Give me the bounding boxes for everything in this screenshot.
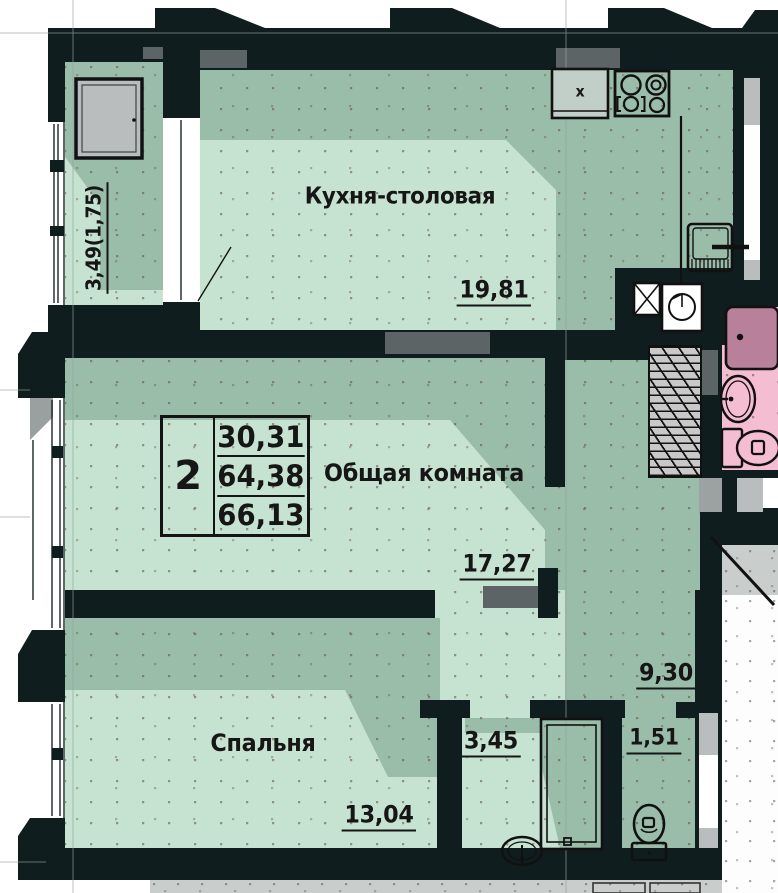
room-balcony — [60, 62, 163, 305]
lower-floor-outlines — [593, 883, 700, 893]
right-window — [699, 755, 718, 828]
balcony-door-glazing — [166, 118, 197, 240]
neighbor-door — [737, 478, 763, 512]
pilaster-1 — [155, 8, 265, 28]
kitchen-label: Кухня-столовая — [305, 186, 496, 209]
total-area: 66,13 — [218, 495, 305, 534]
lintel-entry — [702, 350, 718, 395]
apartment-area: 64,38 — [218, 455, 305, 494]
wall-bottom — [20, 848, 722, 880]
neighbor-toilet-icon — [722, 429, 778, 467]
balcony-area-label: 3,49(1,75) — [84, 182, 109, 294]
neighbor-door-2 — [763, 478, 778, 508]
wall-stub-hall — [538, 568, 558, 618]
pilaster-4 — [742, 10, 778, 28]
pier-2 — [18, 630, 65, 702]
wall-bedroom-bath — [437, 702, 462, 852]
wall-living-bedroom — [65, 590, 435, 618]
wall-entry-lower — [700, 512, 722, 595]
balcony-glazing — [48, 122, 65, 305]
pilaster-2 — [390, 8, 500, 28]
bedroom-label: Спальня — [210, 731, 315, 755]
wall-bath-wc — [603, 702, 622, 852]
lintel-kitchen-living — [385, 332, 490, 354]
wall-top — [163, 28, 778, 70]
living-area-label: 17,27 — [460, 552, 535, 581]
wall-wc-stub — [676, 702, 695, 718]
outside-bottom-strip — [150, 878, 722, 893]
wall-living-hall — [545, 330, 565, 487]
wc-area-label: 1,51 — [627, 728, 682, 755]
duct-niche-block — [615, 268, 735, 345]
bathroom-area-label: 3,45 — [461, 729, 521, 758]
floor-plan: 2 30,31 64,38 66,13 Кухня-столовая 19,81… — [0, 0, 778, 893]
bedroom-window — [30, 702, 65, 818]
duct-hatch — [648, 345, 702, 478]
outside-right — [722, 595, 778, 893]
hall-area-label: 9,30 — [636, 661, 696, 690]
bedroom-area-label: 13,04 — [342, 803, 417, 832]
rooms-count: 2 — [163, 418, 215, 534]
wall-bath-top-left — [420, 700, 470, 718]
pier-1 — [18, 332, 65, 398]
living-area-total: 30,31 — [218, 418, 305, 455]
area-table: 2 30,31 64,38 66,13 — [160, 415, 310, 537]
shaft-block-top — [744, 78, 760, 125]
balcony-door — [166, 240, 197, 302]
neighbor-washbasin-icon — [720, 376, 755, 422]
living-label: Общая комната — [324, 461, 524, 485]
right-window-block-top — [699, 713, 718, 755]
wall-balcony-divider-top — [163, 28, 200, 118]
landing-strip — [722, 545, 778, 595]
kitchen-area-label: 19,81 — [457, 278, 532, 307]
lintel-top-2 — [556, 48, 620, 68]
wall-neighbor-bath-top — [718, 280, 778, 307]
sink-mark: x — [576, 85, 585, 100]
entry-door — [699, 478, 723, 514]
pilaster-3 — [608, 8, 712, 28]
shaft-window — [744, 125, 760, 260]
wall-balcony-bottom — [48, 305, 200, 332]
wall-left-top — [48, 28, 65, 122]
